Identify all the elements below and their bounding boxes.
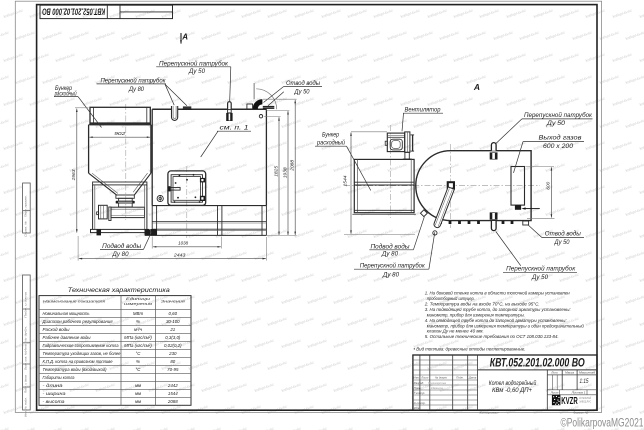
svg-text:80: 80 <box>170 359 175 364</box>
svg-text:Подп. и дата: Подп. и дата <box>24 291 28 318</box>
svg-text:0,3(3,0): 0,3(3,0) <box>165 335 181 340</box>
svg-text:Ду 50: Ду 50 <box>294 90 311 96</box>
svg-text:Лит.: Лит. <box>550 371 558 375</box>
svg-text:Ду 80: Ду 80 <box>111 252 129 258</box>
svg-text:Н.контр.: Н.контр. <box>414 401 426 405</box>
svg-text:Габариты котла: Габариты котла <box>43 375 75 380</box>
svg-text:Значения: Значения <box>161 299 186 304</box>
svg-text:мм: мм <box>135 399 141 404</box>
svg-text:Техническая характеристика: Техническая характеристика <box>68 287 170 294</box>
svg-text:%: % <box>136 359 140 364</box>
svg-text:МВт: МВт <box>133 311 144 316</box>
svg-text:Инв. № подл.: Инв. № подл. <box>24 397 28 417</box>
svg-text:Перепускной патрубок: Перепускной патрубок <box>506 265 576 272</box>
svg-text:КВТ.052.201.02.000 ВО: КВТ.052.201.02.000 ВО <box>42 7 105 17</box>
svg-text:Иванов: Иванов <box>431 387 444 390</box>
svg-text:Подп. и дата: Подп. и дата <box>24 374 28 393</box>
svg-text:1938: 1938 <box>282 167 287 179</box>
svg-text:1. На боковой стенке котла в: 1. На боковой стенке котла в области топ… <box>425 290 570 296</box>
svg-text:клапан Ду не менее 40 мм.: клапан Ду не менее 40 мм. <box>427 329 484 334</box>
svg-text:А: А <box>473 82 480 92</box>
svg-text:21: 21 <box>169 327 175 332</box>
svg-text:Справ. №: Справ. № <box>24 221 28 237</box>
svg-text:Номинальная мощность: Номинальная мощность <box>43 311 91 316</box>
svg-text:Дата: Дата <box>468 376 477 380</box>
svg-text:KVZR: KVZR <box>561 395 578 407</box>
svg-text:1544: 1544 <box>343 175 348 187</box>
svg-text:К.П.Д. котла на привозном топл: К.П.Д. котла на привозном топливе <box>43 359 114 364</box>
svg-text:©PolikarpovaMG2021: ©PolikarpovaMG2021 <box>561 415 644 429</box>
svg-text:Перепускной патрубок: Перепускной патрубок <box>101 78 167 85</box>
svg-text:Диапазон рабочего регулировани: Диапазон рабочего регулирования <box>42 319 114 324</box>
svg-text:Т.контр.: Т.контр. <box>414 391 426 395</box>
svg-text:°С: °С <box>136 367 142 372</box>
svg-text:4. На отводящей трубе котла д: 4. На отводящей трубе котла до запорной … <box>425 317 568 323</box>
svg-text:Гидравлическое сопротивление к: Гидравлическое сопротивление котла <box>43 343 120 348</box>
svg-text:Подвод воды: Подвод воды <box>102 244 142 250</box>
svg-text:Расход воды: Расход воды <box>43 327 71 332</box>
svg-text:Масса: Масса <box>565 371 574 375</box>
svg-text:Перв. примен.: Перв. примен. <box>24 195 28 217</box>
svg-text:Ду 50: Ду 50 <box>531 275 549 281</box>
svg-text:Изм.: Изм. <box>413 376 419 380</box>
svg-text:• Вид топлива: древесные отх: • Вид топлива: древесные отходы пеллетир… <box>414 346 526 351</box>
svg-text:1963: 1963 <box>71 169 76 181</box>
svg-text:Масштаб: Масштаб <box>579 371 595 375</box>
svg-text:А: А <box>181 33 188 42</box>
svg-text:1038: 1038 <box>178 241 189 246</box>
svg-text:пробоотборный штуцер.: пробоотборный штуцер. <box>427 295 475 301</box>
svg-text:Наименование показателя: Наименование показателя <box>43 299 106 304</box>
svg-text:КВТ.052.201.02.000 ВО: КВТ.052.201.02.000 ВО <box>490 357 585 369</box>
svg-text:0,02(0,2): 0,02(0,2) <box>164 343 182 348</box>
svg-text:230: 230 <box>168 351 177 356</box>
svg-text:- высота: - высота <box>43 399 66 404</box>
svg-text:Перепускной патрубок: Перепускной патрубок <box>524 112 593 119</box>
svg-text:1825: 1825 <box>273 165 278 177</box>
svg-text:мм: мм <box>135 391 141 396</box>
svg-text:Ду 80: Ду 80 <box>381 251 399 257</box>
svg-text:902: 902 <box>114 131 126 136</box>
svg-text:Утв.: Утв. <box>414 406 421 410</box>
svg-text:Выход газов: Выход газов <box>539 136 582 142</box>
svg-text:Перепускной патрубок: Перепускной патрубок <box>360 263 426 270</box>
svg-text:2. Температура воды на входе: 2. Температура воды на входе 70°С, на вы… <box>424 302 540 307</box>
svg-text:30-100: 30-100 <box>166 319 180 324</box>
svg-text:2088: 2088 <box>290 159 295 172</box>
svg-text:600 х 200: 600 х 200 <box>543 144 574 150</box>
svg-text:Отвод воды: Отвод воды <box>286 81 321 87</box>
svg-text:Перепускной патрубок: Перепускной патрубок <box>159 60 229 67</box>
svg-text:Температура уходящих газов, не: Температура уходящих газов, не более <box>43 351 122 356</box>
svg-text:- длина: - длина <box>43 383 64 388</box>
svg-text:Пров.: Пров. <box>414 386 422 390</box>
svg-text:Инв. № дубл.: Инв. № дубл. <box>24 326 28 352</box>
svg-text:Подп.: Подп. <box>456 376 464 380</box>
svg-text:мм: мм <box>135 383 141 388</box>
svg-text:измерения: измерения <box>124 301 153 306</box>
svg-text:Разраб.: Разраб. <box>414 381 424 385</box>
svg-text:Формат А2: Формат А2 <box>573 411 588 415</box>
svg-text:КОТЕЛЬНЫЙ: КОТЕЛЬНЫЙ <box>579 397 591 400</box>
svg-text:2442: 2442 <box>167 383 178 388</box>
svg-text:Поликарпова: Поликарпова <box>428 382 447 385</box>
svg-text:Лист: Лист <box>550 391 559 395</box>
svg-text:5. Остальные технические треб: 5. Остальные технические требования по О… <box>425 334 559 339</box>
svg-text:м³/ч: м³/ч <box>134 327 143 332</box>
svg-text:Взам. инв. №: Взам. инв. № <box>24 352 28 370</box>
svg-text:манометр, прибор для измерения: манометр, прибор для измерения температу… <box>427 312 525 317</box>
svg-text:расходный: расходный <box>316 140 346 147</box>
svg-text:70-95: 70-95 <box>167 367 179 372</box>
svg-text:1544: 1544 <box>168 391 178 396</box>
svg-text:Ду 50: Ду 50 <box>554 240 571 246</box>
svg-text:Рабочее давление воды: Рабочее давление воды <box>43 335 92 340</box>
svg-text:Лист: Лист <box>420 376 429 380</box>
svg-text:600: 600 <box>545 181 550 190</box>
svg-text:МПа (кгс/см²): МПа (кгс/см²) <box>124 335 152 340</box>
svg-text:°С: °С <box>136 351 142 356</box>
svg-text:№ докум.: № докум. <box>435 376 448 380</box>
svg-text:см. п. 1: см. п. 1 <box>220 126 249 132</box>
svg-text:Температура воды (вход/выход): Температура воды (вход/выход) <box>43 367 108 372</box>
svg-text:Ду 50: Ду 50 <box>546 121 566 127</box>
svg-text:КВм -0,60 ДП+: КВм -0,60 ДП+ <box>492 387 532 394</box>
svg-text:1:15: 1:15 <box>580 379 590 385</box>
svg-text:2088: 2088 <box>167 399 178 404</box>
svg-text:3. На подводящей трубе котла,: 3. На подводящей трубе котла, до запорно… <box>425 306 572 312</box>
svg-text:Вентилятор: Вентилятор <box>405 107 442 113</box>
svg-text:0,60: 0,60 <box>169 311 178 316</box>
svg-text:2443: 2443 <box>173 252 186 257</box>
svg-text:МПа (кгс/см²): МПа (кгс/см²) <box>124 343 152 348</box>
svg-text:- ширина: - ширина <box>43 391 67 396</box>
svg-text:Отвод воды: Отвод воды <box>545 232 582 238</box>
svg-text:Листов 1: Листов 1 <box>570 391 585 395</box>
svg-text:Ду 80: Ду 80 <box>128 87 145 93</box>
svg-text:Подвод воды: Подвод воды <box>371 244 411 250</box>
svg-text:%: % <box>136 319 140 324</box>
svg-text:ЗАВОД РУС: ЗАВОД РУС <box>579 401 591 404</box>
svg-text:Бункер: Бункер <box>322 133 340 139</box>
svg-text:Ду 80: Ду 80 <box>382 272 400 278</box>
svg-text:манометр, прибор для измерения: манометр, прибор для измерения температу… <box>427 322 584 328</box>
svg-text:Ду 50: Ду 50 <box>188 69 206 75</box>
svg-text:Копировал: Копировал <box>480 411 499 415</box>
